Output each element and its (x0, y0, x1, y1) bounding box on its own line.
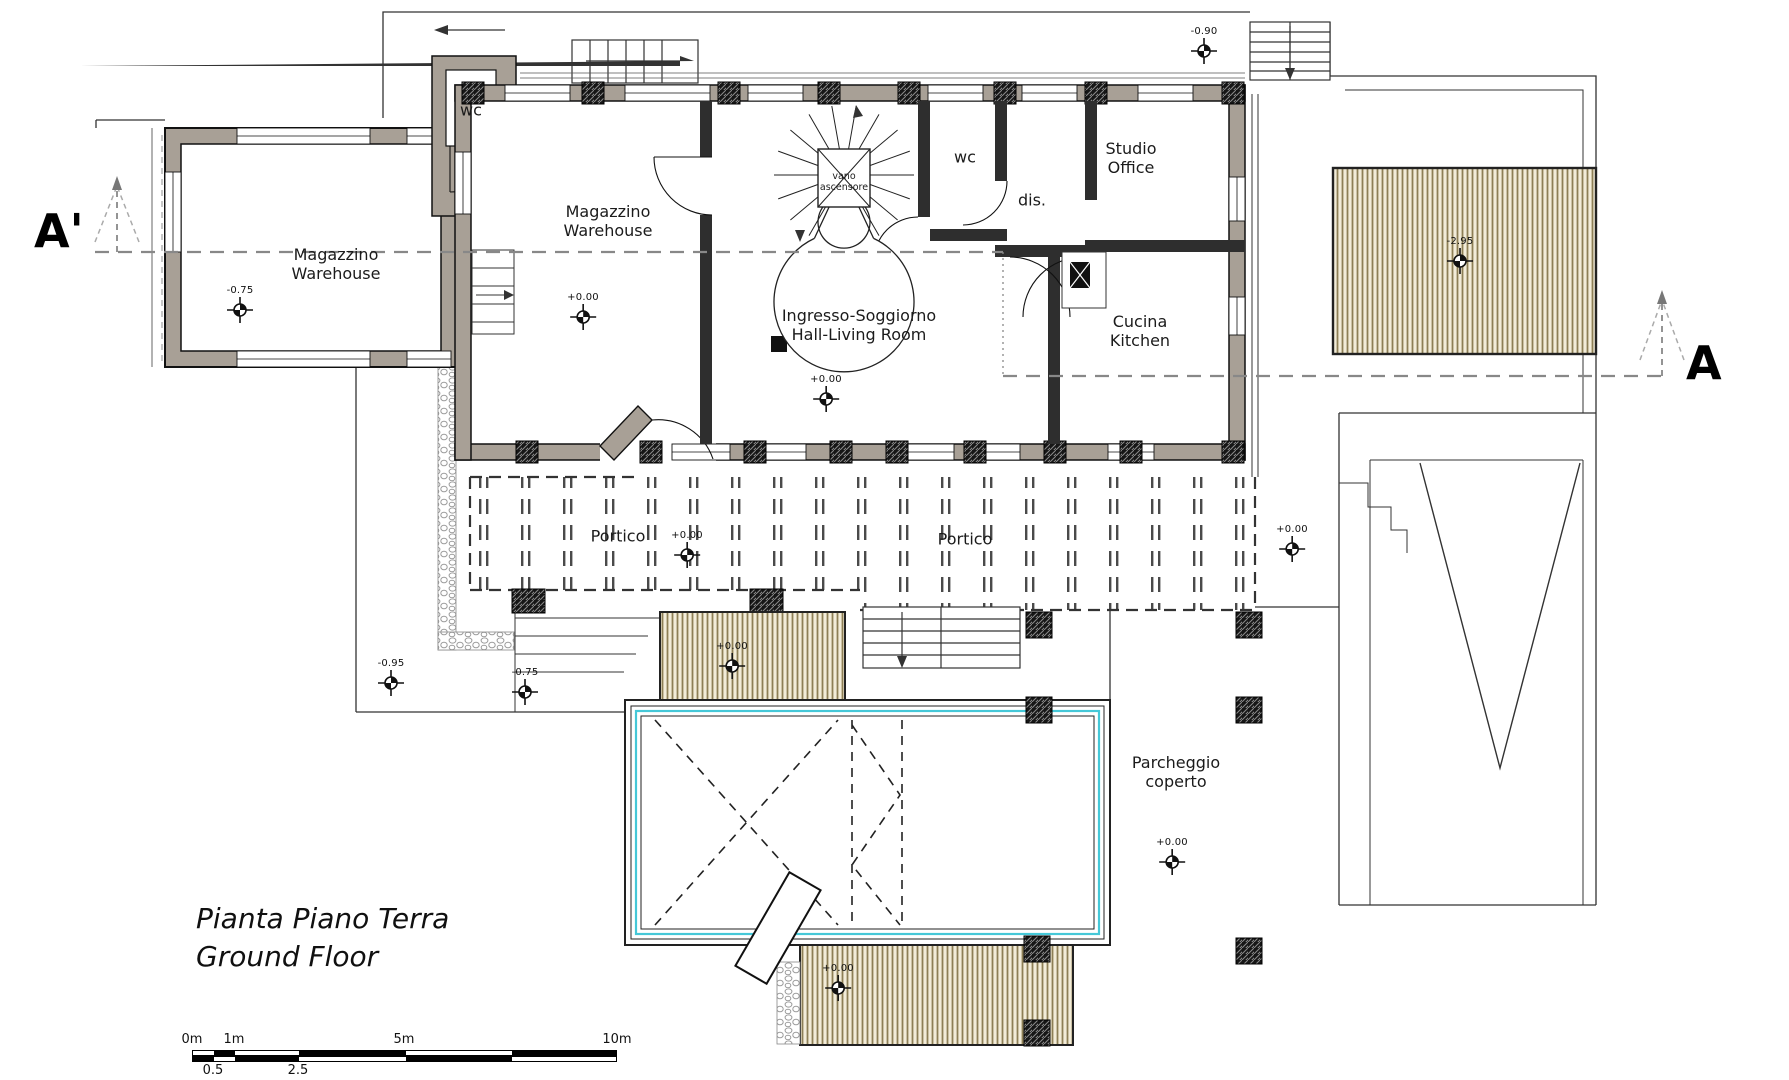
room-label-text: Office (1106, 158, 1157, 177)
room-label-magazzino-main: MagazzinoWarehouse (564, 202, 653, 240)
elevation-marker: +0.00 (1156, 837, 1188, 876)
elevation-marker: -0.95 (377, 658, 405, 697)
room-label-text: Ingresso-Soggiorno (782, 306, 936, 325)
room-label-cucina-kitchen: CucinaKitchen (1110, 312, 1170, 350)
elevation-marker: +0.00 (716, 641, 748, 680)
room-label-text: Magazzino (564, 202, 653, 221)
drawing-title: Pianta Piano Terra Ground Floor (196, 900, 449, 976)
room-label-text: Studio (1106, 139, 1157, 158)
room-label-text: Warehouse (564, 221, 653, 240)
drawing-title-line1: Pianta Piano Terra (196, 900, 449, 938)
elevation-marker-icon (673, 541, 701, 569)
elevation-value: +0.00 (1276, 524, 1308, 535)
elevation-value: -0.95 (378, 658, 405, 669)
elevation-marker-icon (377, 669, 405, 697)
scale-tick-label: 0m (182, 1032, 203, 1047)
elevation-marker-icon (1278, 535, 1306, 563)
room-label-portico-right: Portico (938, 530, 993, 549)
elevation-marker: +0.00 (1276, 524, 1308, 563)
elevation-value: -0.75 (512, 667, 539, 678)
elevation-value: -0.75 (227, 285, 254, 296)
room-label-ingresso-soggiorno: Ingresso-SoggiornoHall-Living Room (782, 306, 936, 344)
room-label-text: dis. (1018, 191, 1046, 210)
scale-tick-label: 0.5 (203, 1063, 224, 1078)
elevation-value: +0.00 (567, 292, 599, 303)
elevation-value: -2.95 (1447, 236, 1474, 247)
scale-tick-label: 2.5 (288, 1063, 309, 1078)
elevation-marker-icon (1190, 37, 1218, 65)
scale-tick-label: 5m (394, 1032, 415, 1047)
elevation-marker: +0.00 (567, 292, 599, 331)
room-label-text: Portico (591, 527, 646, 546)
room-label-text: ascensore (820, 183, 868, 194)
elevation-value: +0.00 (671, 530, 703, 541)
room-label-wc-north: wc (460, 101, 482, 120)
elevation-marker: -0.90 (1190, 26, 1218, 65)
scale-bar-bottom-row (192, 1056, 617, 1062)
scale-tick-label: 10m (602, 1032, 631, 1047)
elevation-marker-icon (718, 652, 746, 680)
floor-plan-canvas: MagazzinoWarehousewcMagazzinoWarehouseva… (0, 0, 1789, 1080)
room-label-text: Hall-Living Room (782, 325, 936, 344)
room-label-studio-office: StudioOffice (1106, 139, 1157, 177)
elevation-marker-icon (569, 303, 597, 331)
elevation-marker: +0.00 (671, 530, 703, 569)
room-label-dis: dis. (1018, 191, 1046, 210)
section-letter-a: A (1686, 336, 1722, 390)
section-letter-a-prime: A' (34, 204, 84, 258)
elevation-marker: -0.75 (226, 285, 254, 324)
elevation-marker: -0.75 (511, 667, 539, 706)
room-label-wc-center: wc (954, 148, 976, 167)
room-label-text: Portico (938, 530, 993, 549)
elevation-value: -0.90 (1191, 26, 1218, 37)
elevation-marker: +0.00 (810, 374, 842, 413)
room-label-text: Warehouse (292, 264, 381, 283)
room-label-text: Kitchen (1110, 331, 1170, 350)
scale-tick-label: 1m (224, 1032, 245, 1047)
drawing-title-line2: Ground Floor (196, 938, 449, 976)
room-label-text: Cucina (1110, 312, 1170, 331)
room-label-text: wc (460, 101, 482, 120)
portico-area (470, 477, 1255, 613)
room-label-text: coperto (1132, 772, 1220, 791)
elevation-value: +0.00 (1156, 837, 1188, 848)
room-label-parcheggio-coperto: Parcheggiocoperto (1132, 753, 1220, 791)
elevation-marker-icon (824, 974, 852, 1002)
room-label-portico-left: Portico (591, 527, 646, 546)
elevation-marker-icon (1158, 848, 1186, 876)
room-label-text: Parcheggio (1132, 753, 1220, 772)
elevation-value: +0.00 (716, 641, 748, 652)
elevation-marker-icon (511, 678, 539, 706)
elevation-value: +0.00 (810, 374, 842, 385)
room-label-vano-ascensore: vanoascensore (820, 172, 868, 194)
room-label-magazzino-left: MagazzinoWarehouse (292, 245, 381, 283)
room-label-text: Magazzino (292, 245, 381, 264)
elevation-marker-icon (812, 385, 840, 413)
elevation-value: +0.00 (822, 963, 854, 974)
elevation-marker-icon (1446, 247, 1474, 275)
elevation-marker: -2.95 (1446, 236, 1474, 275)
elevation-marker-icon (226, 296, 254, 324)
elevation-marker: +0.00 (822, 963, 854, 1002)
room-label-text: wc (954, 148, 976, 167)
